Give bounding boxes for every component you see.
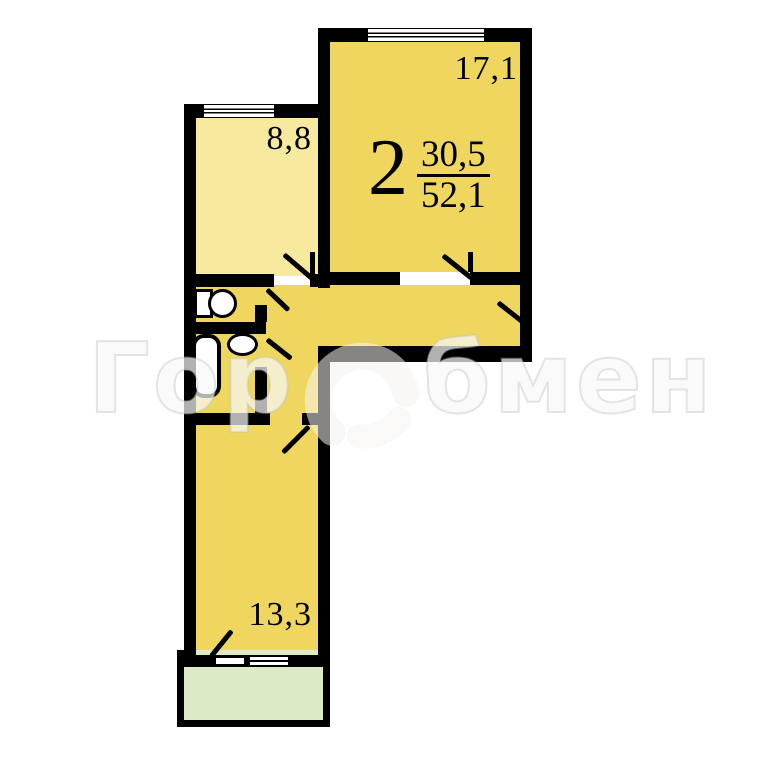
total-area-value: 52,1	[417, 177, 490, 216]
wall-wc-bath-divider	[184, 322, 266, 334]
kitchen-area-label: 8,8	[254, 120, 312, 158]
wall-living-bottom-left	[318, 272, 400, 285]
wall-kitchen-bottom-left	[184, 274, 274, 287]
wall-living-bottom-right	[470, 272, 532, 285]
wall-corridor-bottom-left	[196, 413, 270, 425]
bedroom-window-icon	[250, 657, 288, 665]
wall-living-left	[318, 28, 330, 288]
wall-bath-right	[255, 367, 267, 413]
wall-hall-bottom	[318, 346, 532, 362]
sink-icon	[227, 333, 258, 356]
door-jamb-tick-kitchen	[310, 252, 315, 274]
balcony-door	[214, 656, 246, 666]
wall-outer-right	[520, 28, 532, 362]
wall-bedroom-right	[318, 346, 330, 667]
area-fraction: 30,5 52,1	[417, 136, 490, 216]
apartment-summary-label: 2 30,5 52,1	[368, 136, 490, 216]
living-room-area-label: 17,1	[430, 50, 518, 88]
kitchen-window-icon	[204, 105, 274, 117]
bathtub-icon	[192, 334, 221, 398]
living-area-value: 30,5	[417, 136, 490, 177]
door-jamb-tick-living	[468, 252, 473, 272]
toilet-bowl-icon	[208, 289, 237, 318]
rooms-count-label: 2	[368, 136, 408, 202]
living-room-window-icon	[368, 29, 484, 41]
bedroom-area-label: 13,3	[240, 596, 312, 634]
wall-wc-right	[255, 305, 267, 322]
floor-plan: 17,1 8,8 13,3 2 30,5 52,1 Гор бмен	[0, 0, 768, 768]
